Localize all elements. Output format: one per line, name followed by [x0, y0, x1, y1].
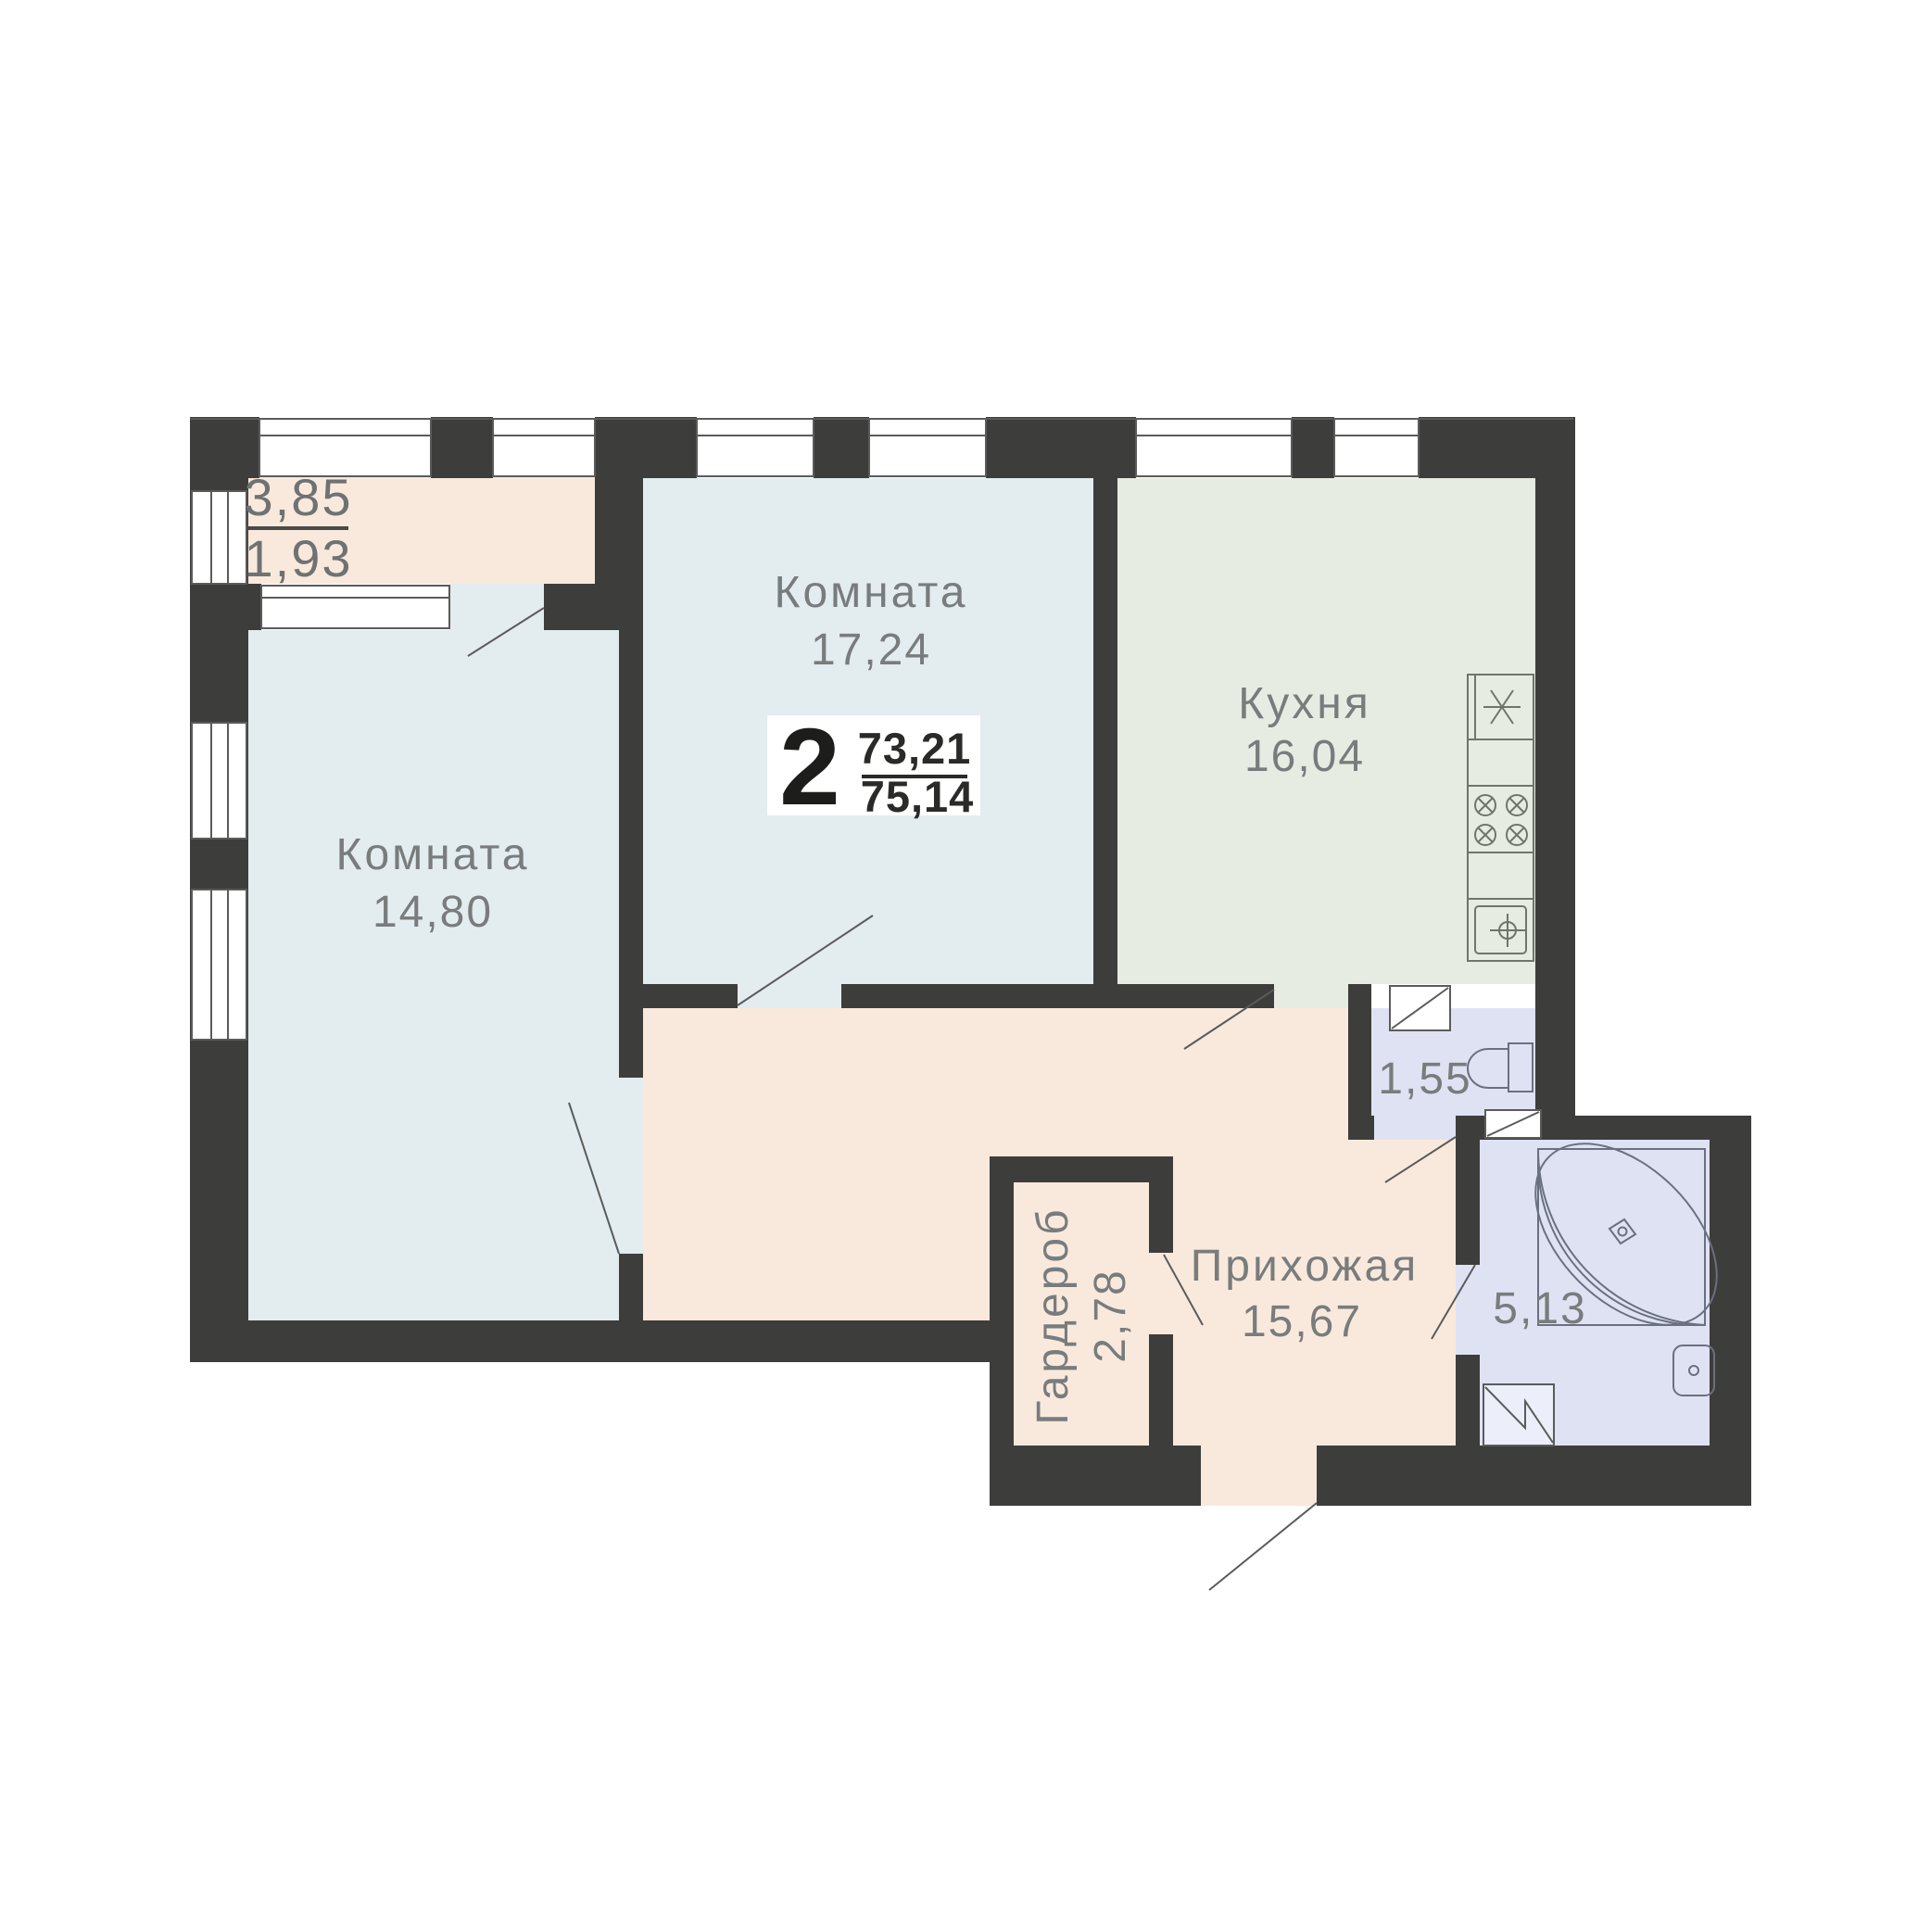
balcony-area-full: 3,85 — [245, 468, 353, 526]
vent-shaft-icon-bathroom-bottom — [1483, 1384, 1554, 1446]
vent-shaft-icon-wc-top — [1390, 986, 1450, 1030]
room-left-area: 14,80 — [372, 888, 493, 937]
wall-bathroom-left-lower — [1456, 1355, 1480, 1446]
wall-top-pier-5 — [1292, 417, 1334, 478]
wall-room-left-right-upper — [619, 630, 643, 1078]
window-left-room-2 — [192, 890, 246, 1040]
kitchen-area: 16,04 — [1244, 732, 1365, 781]
wall-bathroom-left-upper — [1456, 1140, 1480, 1265]
wc-door-opening — [1374, 1116, 1456, 1140]
summary-rooms-count: 2 — [779, 706, 840, 828]
room-left-door-opening — [619, 1078, 643, 1254]
window-balcony-to-room — [261, 586, 449, 628]
window-top-kitchen-1 — [1136, 419, 1292, 476]
wall-balcony-bottom-right — [544, 584, 595, 630]
kitchen-door-opening — [1274, 984, 1348, 1008]
window-top-room-2 — [869, 419, 986, 476]
wall-bottom-left — [190, 1320, 1014, 1362]
balcony-door-opening — [449, 584, 544, 630]
wall-wardrobe-top — [990, 1156, 1173, 1182]
wall-room-kitchen-divider — [1093, 478, 1117, 984]
wall-wardrobe-right-upper — [1149, 1182, 1173, 1253]
wall-corridor-top-a — [643, 984, 738, 1008]
wall-corridor-top-b — [841, 984, 1274, 1008]
wall-top-pier-1 — [431, 417, 493, 478]
balcony-area-reduced: 1,93 — [245, 529, 353, 587]
wardrobe-area: 2,78 — [1086, 1269, 1135, 1362]
summary-area-upper: 73,21 — [858, 724, 972, 773]
window-left-balcony — [192, 491, 246, 584]
wall-bottom-hall-a — [990, 1446, 1201, 1506]
room-left-floor — [248, 584, 643, 1320]
hallway-name: Прихожая — [1191, 1242, 1419, 1291]
window-top-kitchen-2 — [1334, 419, 1419, 476]
wall-balcony-room-pier — [595, 417, 643, 630]
wall-wc-bottom-a — [1348, 1116, 1374, 1140]
window-top-room-1 — [697, 419, 814, 476]
wall-wardrobe-right-lower — [1149, 1334, 1173, 1446]
room-top-name: Комната — [775, 568, 968, 617]
summary-badge: 2 73,21 75,14 — [767, 706, 980, 828]
wall-top-pier-4 — [986, 417, 1136, 478]
wall-room-left-right-lower — [619, 1254, 643, 1320]
wall-balcony-bottom-left — [190, 584, 261, 630]
wall-top-pier-3 — [814, 417, 869, 478]
kitchen-name: Кухня — [1238, 679, 1370, 728]
wall-right-exterior — [1535, 417, 1575, 1140]
window-left-room-1 — [192, 723, 246, 839]
hallway-area: 15,67 — [1242, 1297, 1362, 1346]
wall-bottom-hall-b — [1317, 1446, 1751, 1506]
wardrobe-name: Гардероб — [1029, 1206, 1078, 1424]
door-swing-entrance — [1209, 1503, 1317, 1590]
floor-plan-svg: Комната 17,24 Кухня 16,04 Комната 14,80 … — [0, 0, 1931, 1932]
wall-top-pier-2 — [643, 417, 697, 478]
balcony-label: 3,85 1,93 — [245, 468, 353, 587]
bathroom-area: 5,13 — [1493, 1284, 1586, 1333]
window-top-balcony-2 — [493, 419, 595, 476]
vent-shaft-icon-bathroom-top — [1485, 1110, 1541, 1138]
room-top-area: 17,24 — [811, 625, 931, 675]
wc-area: 1,55 — [1378, 1054, 1471, 1104]
floor-plan-page: Комната 17,24 Кухня 16,04 Комната 14,80 … — [0, 0, 1931, 1932]
room-left-name: Комната — [336, 830, 530, 879]
summary-area-lower: 75,14 — [861, 772, 975, 821]
entrance-door-opening — [1201, 1446, 1317, 1506]
